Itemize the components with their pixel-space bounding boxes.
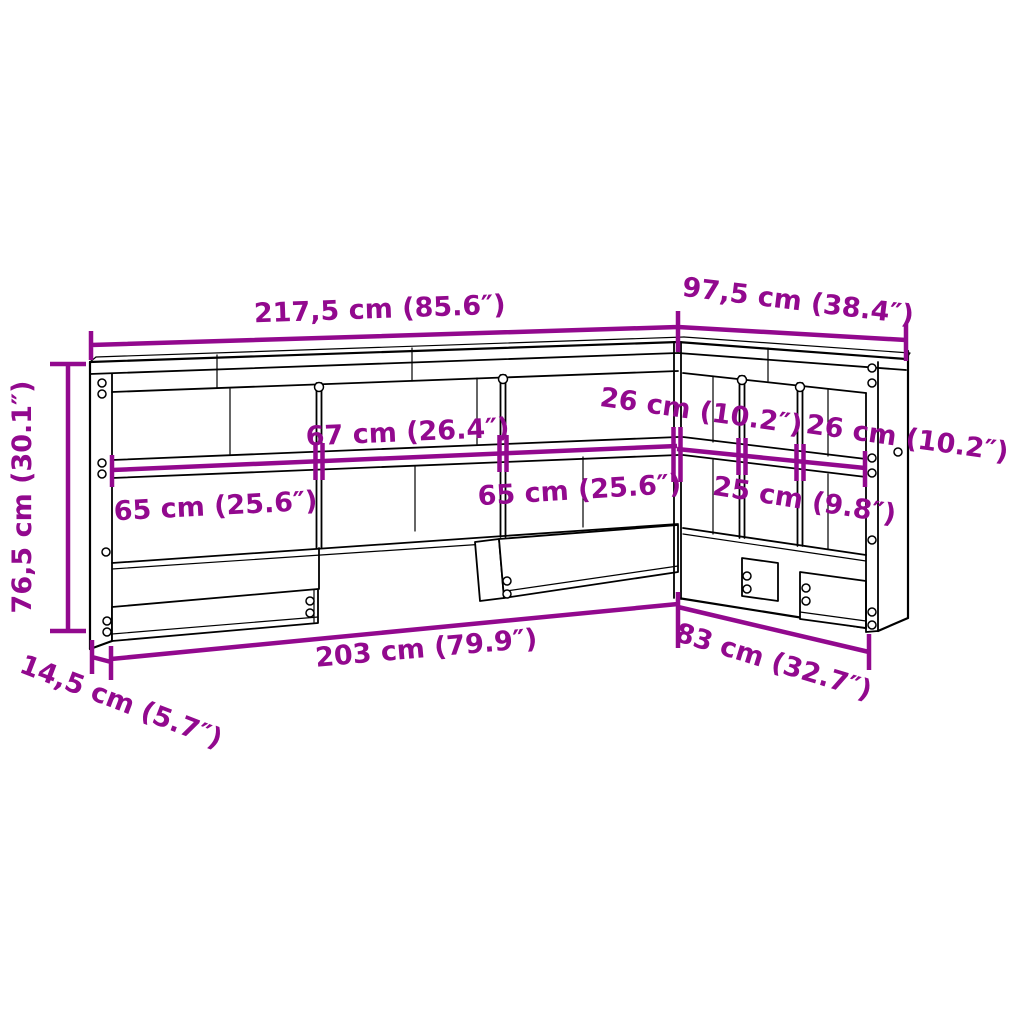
- right-end-panel-outline: [878, 351, 908, 631]
- dim-label-shelf-middle: 67 cm (26.4″): [305, 413, 510, 453]
- left-lower-divider-1: [317, 469, 322, 589]
- left-top-bottom-edge: [90, 353, 678, 374]
- dim-label-shelf-left: 65 cm (25.6″): [113, 486, 318, 528]
- dimension-top-width: 217,5 cm (85.6″): [91, 290, 678, 360]
- right-bottom-shelf-edge: [683, 528, 866, 555]
- left-top-front-edge: [90, 342, 678, 362]
- left-base-panel-2: [499, 525, 678, 598]
- right-top-rail: [683, 373, 866, 393]
- left-top-rail: [112, 371, 678, 392]
- dim-label-side-width: 97,5 cm (38.4″): [681, 272, 916, 331]
- dim-label-height: 76,5 cm (30.1″): [7, 381, 38, 614]
- left-base-panel-1: [112, 589, 318, 641]
- diagram-canvas: 217,5 cm (85.6″) 97,5 cm (38.4″) 65 cm (…: [0, 0, 1024, 1024]
- dim-label-bottom-width: 203 cm (79.9″): [314, 623, 539, 673]
- dimension-shelf-segments-left-wing: 65 cm (25.6″) 67 cm (26.4″) 65 cm (25.6″…: [112, 413, 682, 528]
- dimension-height: 76,5 cm (30.1″): [7, 364, 86, 631]
- right-bottom-shelf-thickness: [683, 534, 866, 561]
- left-bottom-shelf-thickness: [112, 543, 500, 569]
- furniture-dimension-diagram: 217,5 cm (85.6″) 97,5 cm (38.4″) 65 cm (…: [0, 0, 1024, 1024]
- dim-label-side-shelf-first: 26 cm (10.2″): [598, 382, 804, 441]
- dim-label-top-width: 217,5 cm (85.6″): [253, 290, 506, 330]
- dim-label-depth: 14,5 cm (5.7″): [16, 649, 227, 755]
- dimension-side-width: 97,5 cm (38.4″): [678, 272, 916, 361]
- dim-label-shelf-right: 65 cm (25.6″): [477, 469, 682, 512]
